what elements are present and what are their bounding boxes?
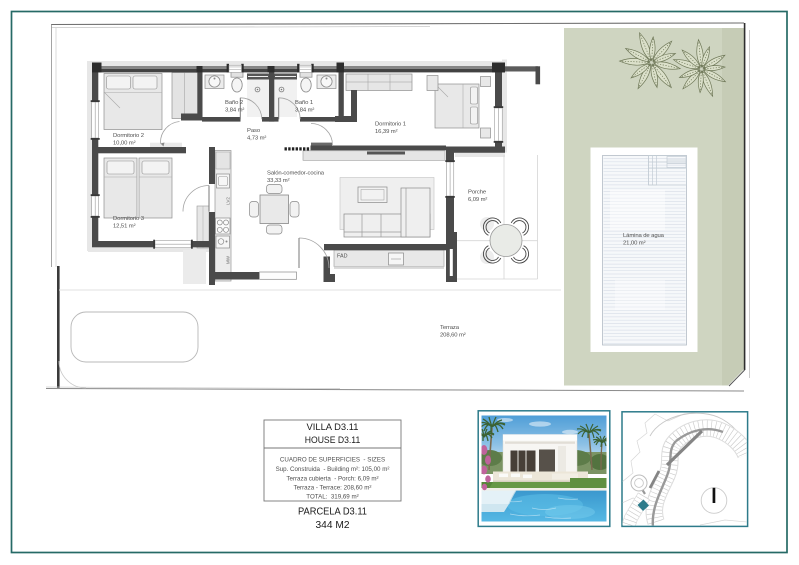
svg-text:CUADRO DE SUPERFICIES - SIZES: CUADRO DE SUPERFICIES - SIZES — [280, 456, 385, 463]
svg-text:Porche: Porche — [468, 190, 487, 196]
svg-text:3,84 m²: 3,84 m² — [295, 108, 314, 114]
svg-text:6,09 m²: 6,09 m² — [468, 197, 487, 203]
svg-text:Paso: Paso — [247, 128, 261, 134]
svg-text:Terraza cubierta - Porch: 6,0: Terraza cubierta - Porch: 6,09 m² — [286, 475, 378, 482]
svg-text:HOUSE D3.11: HOUSE D3.11 — [305, 434, 361, 445]
svg-text:344 M2: 344 M2 — [316, 520, 350, 531]
svg-text:Sup. Construida - Building m²: Sup. Construida - Building m²: 105,00 m² — [276, 466, 390, 473]
svg-text:Salón-comedor-cocina: Salón-comedor-cocina — [267, 171, 325, 177]
svg-text:Terraza - Terrace: 208,60 m²: Terraza - Terrace: 208,60 m² — [294, 485, 372, 492]
svg-text:Dormitorio 2: Dormitorio 2 — [113, 133, 144, 139]
svg-text:PARCELA D3.11: PARCELA D3.11 — [298, 507, 367, 518]
svg-text:Dormitorio 3: Dormitorio 3 — [113, 216, 145, 222]
svg-text:Lámina de agua: Lámina de agua — [623, 233, 665, 239]
svg-text:12,51 m²: 12,51 m² — [113, 224, 136, 230]
svg-text:Terraza: Terraza — [440, 325, 460, 331]
svg-text:21,00 m²: 21,00 m² — [623, 241, 646, 247]
svg-text:Baño 2: Baño 2 — [225, 100, 243, 106]
svg-text:16,39 m²: 16,39 m² — [375, 129, 398, 135]
svg-text:Dormitorio 1: Dormitorio 1 — [375, 122, 406, 128]
svg-text:TOTAL: 319,69 m²: TOTAL: 319,69 m² — [306, 494, 358, 501]
svg-text:FAD: FAD — [337, 254, 348, 260]
svg-text:MW: MW — [226, 255, 231, 264]
svg-text:Baño 1: Baño 1 — [295, 100, 313, 106]
svg-text:208,60 m²: 208,60 m² — [440, 333, 466, 339]
svg-text:VILLA D3.11: VILLA D3.11 — [307, 421, 359, 432]
svg-text:3,84 m²: 3,84 m² — [225, 108, 244, 114]
svg-text:10,00 m²: 10,00 m² — [113, 141, 136, 147]
svg-text:4,73 m²: 4,73 m² — [247, 136, 266, 142]
svg-text:33,33 m²: 33,33 m² — [267, 178, 290, 184]
svg-text:LV2: LV2 — [226, 197, 231, 205]
